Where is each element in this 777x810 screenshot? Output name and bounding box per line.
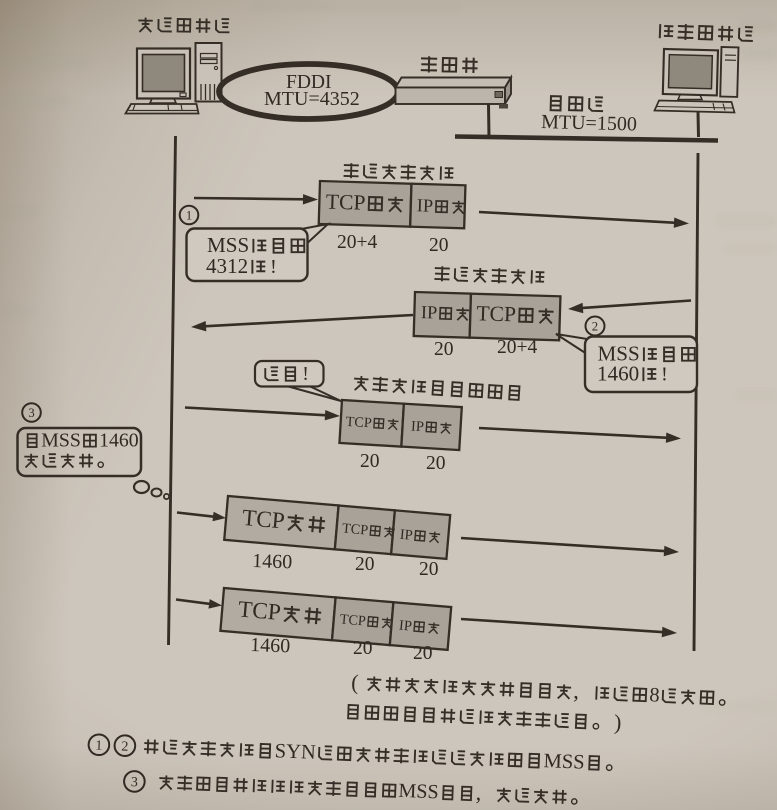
- svg-text:TCP: TCP: [341, 520, 368, 538]
- svg-text:SYN: SYN: [274, 740, 316, 763]
- svg-text:(: (: [351, 670, 359, 694]
- svg-text:20: 20: [419, 559, 439, 580]
- svg-text:,: ,: [475, 780, 481, 805]
- svg-text:TCP: TCP: [241, 505, 286, 535]
- svg-text:IP: IP: [417, 195, 434, 215]
- svg-text:TCP: TCP: [326, 190, 366, 215]
- svg-text:,: ,: [573, 678, 580, 703]
- svg-text:4312: 4312: [206, 254, 248, 278]
- svg-text:20: 20: [434, 339, 454, 360]
- svg-text:2: 2: [592, 320, 598, 334]
- svg-text:3: 3: [131, 775, 139, 790]
- svg-text:20+4: 20+4: [337, 232, 377, 253]
- svg-text:): ): [614, 710, 622, 734]
- svg-text:20: 20: [353, 638, 373, 659]
- svg-text:1: 1: [95, 739, 103, 754]
- svg-text:!: !: [270, 256, 277, 278]
- svg-text:20: 20: [413, 643, 433, 664]
- svg-text:1460: 1460: [99, 430, 139, 452]
- svg-text:!: !: [302, 363, 309, 385]
- svg-text:IP: IP: [398, 618, 412, 635]
- svg-text:!: !: [661, 364, 668, 386]
- svg-text:1460: 1460: [597, 362, 639, 386]
- svg-text:TCP: TCP: [476, 301, 516, 326]
- svg-text:TCP: TCP: [339, 611, 366, 629]
- svg-text:MSS: MSS: [41, 430, 81, 452]
- svg-text:MSS: MSS: [543, 750, 585, 773]
- svg-text:2: 2: [121, 739, 129, 754]
- svg-text:20: 20: [429, 235, 449, 256]
- svg-text:3: 3: [28, 406, 34, 420]
- svg-text:1: 1: [186, 208, 192, 222]
- svg-text:20: 20: [426, 453, 446, 474]
- svg-text:IP: IP: [399, 527, 413, 544]
- svg-text:IP: IP: [421, 302, 438, 322]
- svg-text:TCP: TCP: [345, 414, 372, 432]
- svg-text:MTU=1500: MTU=1500: [541, 111, 637, 135]
- svg-text:20: 20: [355, 554, 375, 575]
- svg-text:20: 20: [360, 451, 380, 472]
- svg-text:20+4: 20+4: [497, 337, 537, 358]
- svg-text:IP: IP: [411, 419, 425, 436]
- svg-text:MSS: MSS: [398, 780, 439, 803]
- svg-text:MTU=4352: MTU=4352: [264, 88, 360, 110]
- svg-text:1460: 1460: [252, 550, 293, 573]
- svg-text:TCP: TCP: [237, 596, 282, 625]
- svg-text:1460: 1460: [250, 634, 291, 657]
- svg-text:8: 8: [649, 684, 660, 706]
